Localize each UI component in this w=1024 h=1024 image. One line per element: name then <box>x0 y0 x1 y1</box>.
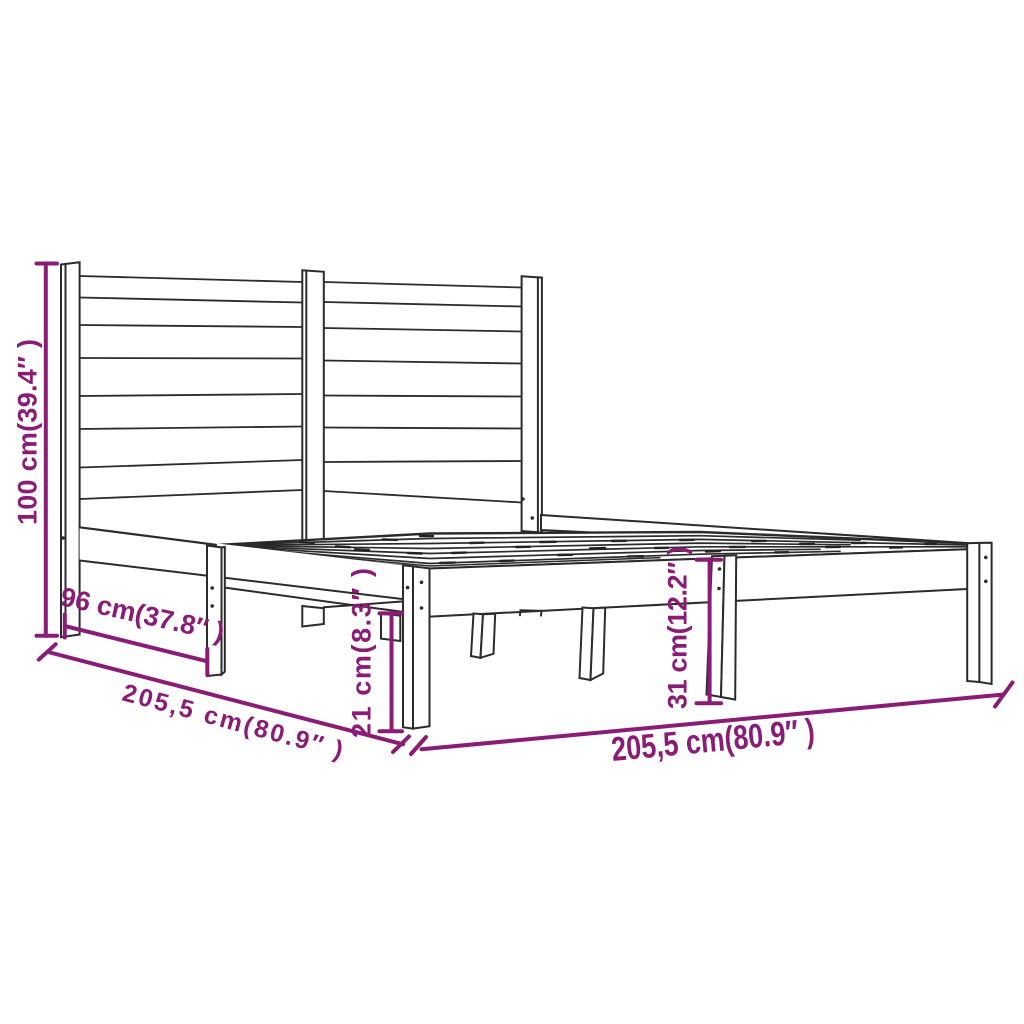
svg-text:21 cm(8.3″ ): 21 cm(8.3″ ) <box>347 568 377 738</box>
svg-text:100 cm(39.4″ ): 100 cm(39.4″ ) <box>12 339 42 525</box>
svg-text:31 cm(12.2″ ): 31 cm(12.2″ ) <box>663 546 693 709</box>
